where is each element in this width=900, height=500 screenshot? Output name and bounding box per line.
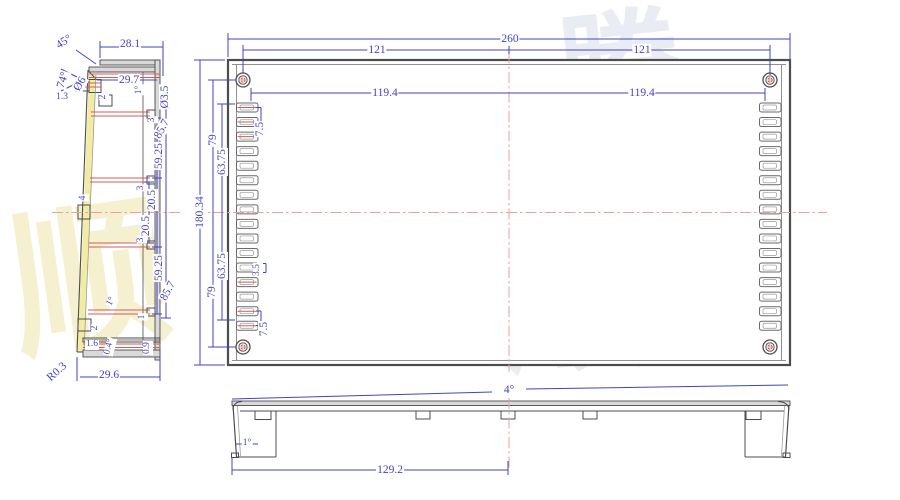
dim-59-25-top: 59.25 [153, 142, 165, 170]
dim-slot-pitch-top: 7.5 [254, 121, 266, 137]
dim-hole-diameter: Ø3.5 [159, 85, 171, 110]
dim-rib-thk-mid-bot: 3 [137, 237, 147, 244]
dim-79-top: 79 [207, 133, 219, 147]
dim-notch-top: 2 [99, 94, 109, 101]
dim-1-bot: 1 [138, 314, 148, 321]
dim-top-width: 28.1 [119, 38, 141, 50]
dim-slot-pitch-bot: 7.5 [258, 321, 270, 337]
dim-0-9: 0.9 [143, 341, 153, 355]
dim-hole-span-left: 121 [367, 44, 386, 56]
screw-hole [763, 73, 777, 87]
rib-boss [147, 176, 155, 184]
underside-notch [583, 411, 597, 419]
dim-59-25-bot: 59.25 [153, 254, 165, 282]
screw-hole [236, 340, 250, 354]
dim-slot-span-left: 119.4 [371, 87, 398, 99]
cad-drawing-sheet: 顺 发 顺 达 腾 [0, 0, 900, 500]
dim-overall-height: 180.34 [194, 195, 206, 229]
dim-rib-thk-top: 3 [148, 117, 158, 124]
dim-20-5-top: 20.5 [146, 189, 158, 211]
dim-63-75-top: 63.75 [216, 148, 228, 176]
dim-top-angle: 4° [503, 384, 515, 396]
dim-draft-top: 1° [135, 85, 145, 96]
front-view [232, 401, 791, 458]
dim-79-bot: 79 [206, 285, 218, 299]
dim-hole-span-right: 121 [632, 44, 651, 56]
dim-lip-thickness: 1.3 [55, 93, 69, 103]
dim-center-notch: 4 [79, 195, 89, 202]
dim-slot-span-right: 119.4 [628, 87, 655, 99]
screw-hole [763, 340, 777, 354]
dim-wall-1-6: 1.6 [85, 340, 99, 350]
dim-leg-draft: 1° [242, 439, 253, 449]
screw-hole [236, 73, 250, 87]
dim-20-5-bot: 20.5 [140, 215, 152, 237]
dim-slot-height: 3.5 [253, 263, 263, 277]
rib-boss [147, 308, 155, 316]
dim-half-width: 129.2 [376, 464, 404, 476]
rib-boss [147, 241, 155, 249]
dim-63-75-bot: 63.75 [216, 252, 228, 280]
underside-notch [416, 411, 430, 419]
dim-bottom-width: 29.6 [98, 369, 120, 381]
dim-notch-bot: 2 [91, 325, 101, 332]
underside-notch [501, 411, 515, 419]
dim-overall-width: 260 [500, 33, 519, 45]
